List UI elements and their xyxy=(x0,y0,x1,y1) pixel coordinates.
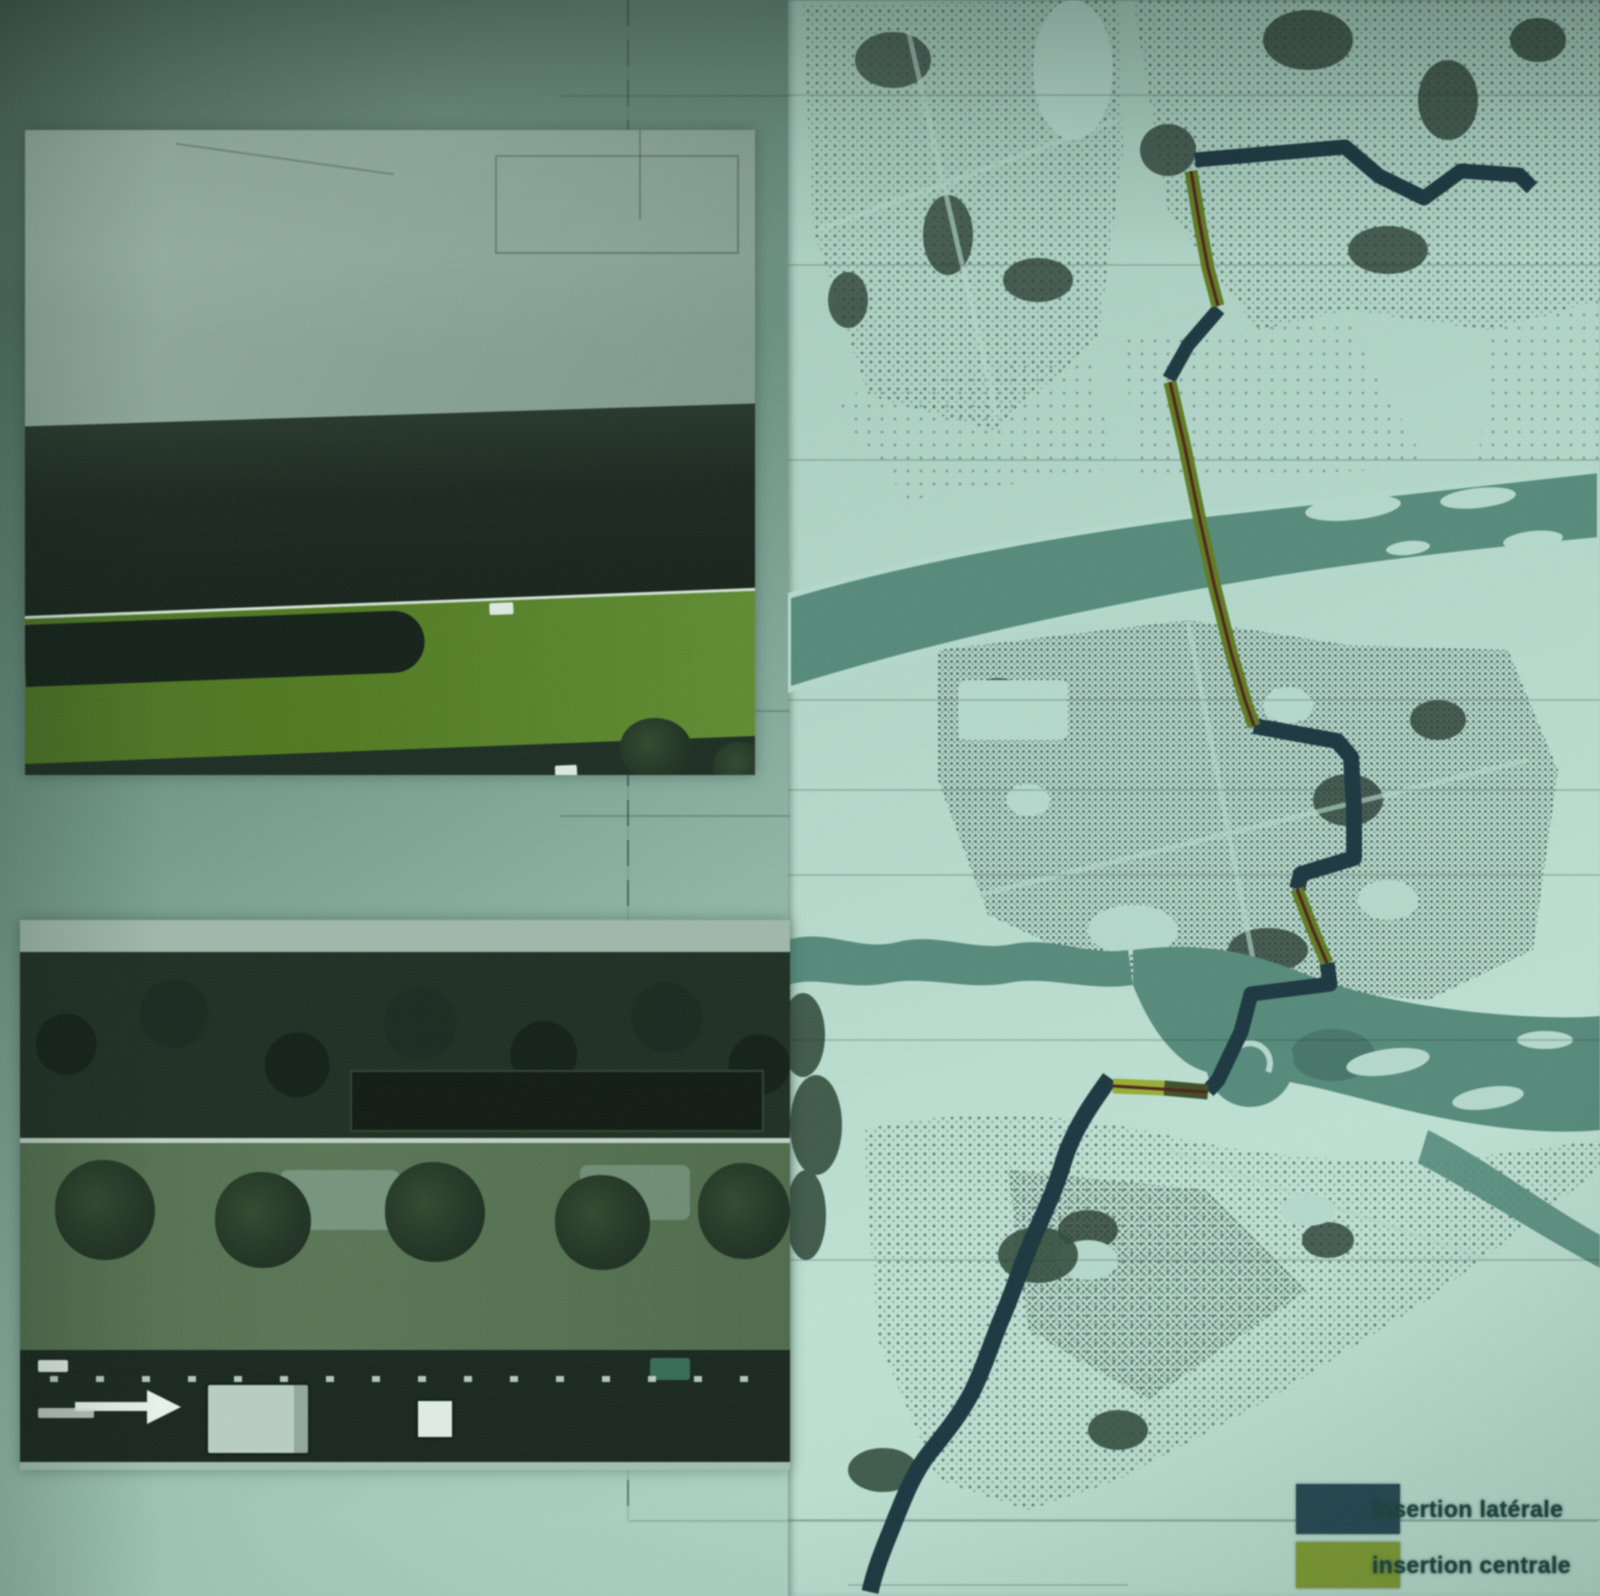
car xyxy=(489,602,513,615)
car xyxy=(555,765,577,775)
tram-platform xyxy=(350,1070,764,1132)
leader-line xyxy=(560,815,790,817)
tree-band xyxy=(25,403,755,623)
bus-vehicle xyxy=(205,1382,311,1456)
tree-canopy xyxy=(698,1163,790,1259)
tree-cluster xyxy=(620,718,692,775)
car-vehicle xyxy=(415,1398,455,1440)
roadway xyxy=(20,1350,790,1462)
aerial-photo-tram-corridor xyxy=(25,130,755,775)
plan-bottom-edge xyxy=(20,1462,790,1470)
road-marking xyxy=(38,1408,94,1418)
arrow-head xyxy=(147,1390,181,1424)
tree-canopy xyxy=(55,1160,155,1260)
map-legend: insertion latérale insertion centrale xyxy=(1296,1482,1576,1592)
tram-vehicle xyxy=(25,610,426,687)
field-line xyxy=(639,130,641,220)
tree-canopy xyxy=(555,1175,650,1270)
tree-canopy xyxy=(215,1172,311,1268)
tree-canopy xyxy=(385,1162,485,1262)
legend-label-insertion-centrale: insertion centrale xyxy=(1372,1552,1571,1579)
aerial-photo-boulevard xyxy=(20,920,790,1470)
slide-content: insertion latérale insertion centrale xyxy=(0,0,1600,1596)
projected-slide-photo: insertion latérale insertion centrale xyxy=(0,0,1600,1596)
tram-route-map xyxy=(788,0,1600,1596)
field-outline xyxy=(495,155,739,254)
legend-label-insertion-laterale: insertion latérale xyxy=(1372,1496,1563,1523)
leader-line xyxy=(560,95,790,97)
dashed-lane-dots xyxy=(50,1376,770,1382)
city-map-sheet xyxy=(788,0,1600,1596)
road-marking xyxy=(38,1360,68,1372)
